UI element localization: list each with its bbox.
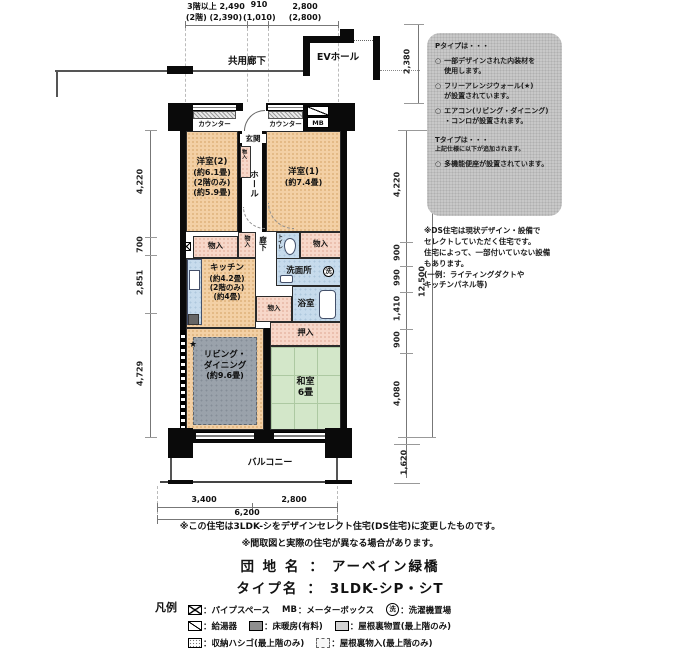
dim-line-2380 — [418, 24, 419, 103]
bathroom-label: 浴室 — [293, 299, 319, 310]
washitsu-area: 6畳 — [270, 388, 341, 399]
bottom-dim-1: 3,400 — [179, 495, 229, 505]
ev-hall-door-line — [354, 40, 373, 41]
legend-water-heater: ：給湯器 — [188, 620, 237, 632]
corridor-edge — [56, 70, 58, 97]
dim-tick — [145, 255, 157, 256]
legend-pipe-space: ：パイプスペース — [188, 604, 270, 616]
water-heater-icon — [188, 621, 202, 631]
kitchen-area: (約4.2畳) — [200, 274, 254, 283]
balcony-rail-post — [168, 480, 193, 484]
toilet-label: トイレ — [277, 234, 282, 249]
legend-title: 凡例 — [150, 601, 182, 615]
note-2: ※間取図と実際の住宅が異なる場合があります。 — [100, 539, 580, 550]
bullet-icon: ○ — [435, 107, 441, 126]
kitchen-label: キッチン (約4.2畳) (2階のみ) (約4畳) — [200, 263, 254, 302]
balcony-side-left — [170, 458, 172, 482]
balcony-corner-left — [168, 428, 193, 458]
t-type-item: ○ 多機能便座が設置されています。 — [435, 160, 555, 169]
right-dim-line — [406, 130, 407, 478]
dim-tick — [337, 503, 338, 512]
legend-row-3: ：収納ハシゴ(最上階のみ) ：屋根裏物入(最上階のみ) — [188, 637, 433, 649]
storage-right-label: 物入 — [300, 239, 341, 248]
legend-row-1: ：パイプスペース MB ：メーターボックス 洗 ：洗濯機置場 — [188, 603, 451, 616]
storage-small-label: 物入 — [256, 304, 292, 312]
t-type-subtitle: 上記仕様に以下が追加されます。 — [435, 146, 555, 154]
legend-label: ：屋根裏物入(最上階のみ) — [331, 637, 432, 649]
balcony-side-right — [336, 458, 338, 482]
legend-meter-box: MB ：メーターボックス — [282, 604, 374, 616]
p-type-title: Pタイプは・・・ — [435, 42, 555, 51]
ev-hall-wall-top — [303, 36, 345, 43]
dim-tick — [404, 24, 424, 25]
shoe-storage-label: 物入 — [241, 149, 246, 159]
storage-ladder-icon — [188, 638, 202, 648]
floor-heating-icon — [249, 621, 263, 631]
living-name2: ダイニング — [193, 361, 257, 372]
left-wall — [180, 110, 186, 330]
stove-icon — [188, 314, 199, 325]
bottom-dim-2: 2,800 — [269, 495, 319, 505]
washer-place-icon: 洗 — [323, 266, 334, 277]
bottom-dim-line-2 — [157, 519, 338, 520]
dim-tick — [400, 329, 413, 330]
legend-attic-closet: ：屋根裏物入(最上階のみ) — [316, 637, 432, 649]
legend-label: ：メーターボックス — [298, 604, 374, 616]
dim-left-1: 4,220 — [136, 152, 145, 212]
right-wall — [341, 131, 347, 430]
estate-name-row: 団 地 名 ： アーベイン緑橋 — [100, 555, 580, 575]
attic-closet-icon — [316, 638, 330, 648]
counter-window-right — [268, 104, 303, 111]
type-name-label: タイプ名 — [236, 577, 298, 597]
room1-area: (約7.4畳) — [266, 178, 341, 188]
type-name-value: 3LDK-シP・シT — [330, 577, 444, 597]
counter-window-left — [193, 104, 236, 111]
corridor-label: 廊下 — [259, 236, 267, 251]
oshiire-label: 押入 — [270, 328, 341, 338]
living-label: リビング・ ダイニング (約9.6畳) — [193, 350, 257, 381]
corridor-dotted — [380, 70, 420, 71]
estate-name-value: アーベイン緑橋 — [332, 555, 440, 575]
note-1: ※この住宅は3LDK-シをデザインセレクト住宅(DS住宅)に変更したものです。 — [100, 522, 580, 533]
dim-tick — [157, 503, 158, 512]
p-type-item: ○ エアコン(リビング・ダイニング) ・コンロが設置されます。 — [435, 107, 555, 126]
floor-plan-page: 3階以上 2,490 910 2,800 (2階) (2,390) (1,010… — [0, 0, 700, 650]
legend-floor-heating: ：床暖房(有料) — [249, 620, 323, 632]
pipe-space-icon — [188, 605, 202, 615]
legend-attic-storage: ：屋根裏物置(最上階のみ) — [335, 620, 451, 632]
bullet-icon: ○ — [435, 160, 441, 169]
legend-label: ：床暖房(有料) — [264, 620, 323, 632]
kitchen-area2: (約4畳) — [200, 292, 254, 301]
p-type-item-text: フリーアレンジウォール(★) が設置されています。 — [444, 82, 533, 101]
t-type-title: Tタイプは・・・ — [435, 136, 555, 145]
type-info-panel: Pタイプは・・・ ○ 一部デザインされた内装材を 使用します。 ○ フリーアレン… — [427, 33, 562, 216]
top-dim-2: 910 — [243, 0, 275, 10]
legend-label: ：洗濯機置場 — [400, 604, 451, 616]
p-type-item: ○ フリーアレンジウォール(★) が設置されています。 — [435, 82, 555, 101]
dim-balcony-depth: 1,620 — [400, 433, 409, 493]
dim-2380: 2,380 — [403, 32, 412, 92]
top-dim-3: 2,800 — [283, 2, 327, 12]
hall-label: ホール — [249, 170, 258, 199]
dim-tick — [404, 103, 424, 104]
living-area: (約9.6畳) — [193, 371, 257, 381]
t-type-item-text: 多機能便座が設置されています。 — [444, 160, 548, 169]
room1-name: 洋室(1) — [266, 167, 341, 178]
dim-tick — [145, 437, 157, 438]
bottom-dim-total: 6,200 — [222, 508, 272, 518]
legend-washer: 洗 ：洗濯機置場 — [386, 603, 451, 616]
attic-storage-icon — [335, 621, 349, 631]
washer-circle-icon: 洗 — [386, 603, 399, 616]
ev-hall-wall-right — [373, 36, 380, 80]
legend-label: ：給湯器 — [203, 620, 237, 632]
storage-left-label: 物入 — [193, 241, 238, 250]
dim-right-6: 4,080 — [393, 364, 402, 424]
room1-label: 洋室(1) (約7.4畳) — [266, 167, 341, 188]
dim-tick — [145, 237, 157, 238]
dim-right-5: 900 — [393, 310, 402, 370]
top-dim-line — [185, 25, 338, 26]
balcony-corner-right — [325, 428, 352, 458]
balcony-label: バルコニー — [230, 458, 310, 469]
genkan-label: 玄関 — [240, 134, 266, 143]
ev-hall-label: EVホール — [306, 52, 370, 64]
dim-tick — [400, 242, 413, 243]
free-arrange-wall — [180, 330, 186, 430]
type-name-row: タイプ名 ： 3LDK-シP・シT — [100, 577, 580, 597]
room2-label: 洋室(2) (約6.1畳) (2階のみ) (約5.9畳) — [186, 157, 238, 198]
ev-hall-stub — [340, 29, 354, 43]
washbasin-icon — [280, 275, 293, 283]
type-name-colon: ： — [307, 577, 321, 597]
water-heater-icon — [307, 106, 329, 116]
p-type-item-text: 一部デザインされた内装材を 使用します。 — [444, 57, 535, 76]
estate-name-label: 団 地 名 — [240, 555, 300, 575]
p-type-item: ○ 一部デザインされた内装材を 使用します。 — [435, 57, 555, 76]
room2-area: (約6.1畳) — [186, 168, 238, 178]
washitsu-balcony-window — [274, 432, 332, 440]
mb-text-icon: MB — [282, 605, 297, 615]
kitchen-name: キッチン — [200, 263, 254, 274]
estate-name-colon: ： — [309, 555, 323, 575]
living-name1: リビング・ — [193, 350, 257, 361]
living-balcony-window — [196, 432, 254, 440]
bathtub-icon — [319, 290, 336, 319]
ds-note: ※DS住宅は現状デザイン・設備で セレクトしていただく住宅です。 住宅によって、… — [424, 226, 604, 291]
common-corridor-label: 共用廊下 — [212, 56, 282, 68]
counter-sill-left — [193, 111, 236, 119]
storage-mid-label: 物入 — [243, 235, 249, 247]
kitchen-sink-icon — [189, 270, 200, 290]
washitsu-name: 和室 — [270, 377, 341, 388]
room2-area2: (約5.9畳) — [186, 188, 238, 198]
room2-name: 洋室(2) — [186, 157, 238, 168]
left-dim-line — [150, 130, 151, 437]
corridor-pillar — [167, 66, 193, 74]
washer-glyph: 洗 — [325, 268, 332, 275]
counter-left-label: カウンター — [191, 120, 238, 128]
dim-tick — [400, 292, 413, 293]
washitsu-label: 和室 6畳 — [270, 377, 341, 400]
top-dim-3b: (2,800) — [283, 13, 327, 23]
legend-storage-ladder: ：収納ハシゴ(最上階のみ) — [188, 637, 304, 649]
extension-line — [185, 28, 186, 102]
dim-tick — [400, 353, 413, 354]
balcony-rail-post — [325, 480, 352, 484]
dim-tick — [145, 313, 157, 314]
bullet-icon: ○ — [435, 57, 441, 76]
legend-row-2: ：給湯器 ：床暖房(有料) ：屋根裏物置(最上階のみ) — [188, 620, 451, 632]
counter-sill-right — [268, 111, 303, 119]
bullet-icon: ○ — [435, 82, 441, 101]
legend-label: ：パイプスペース — [203, 604, 270, 616]
mb-box: MB — [307, 117, 329, 128]
room2-floor-note: (2階のみ) — [186, 178, 238, 188]
p-type-item-text: エアコン(リビング・ダイニング) ・コンロが設置されます。 — [444, 107, 548, 126]
dim-left-4: 4,729 — [136, 344, 145, 404]
kitchen-floor-note: (2階のみ) — [200, 283, 254, 292]
legend-label: ：収納ハシゴ(最上階のみ) — [203, 637, 304, 649]
counter-right-label: カウンター — [262, 120, 309, 128]
dim-right-1: 4,220 — [393, 155, 402, 215]
dim-tick — [145, 130, 157, 131]
dim-left-3: 2,851 — [136, 253, 145, 313]
dim-tick — [400, 266, 413, 267]
legend-label: ：屋根裏物置(最上階のみ) — [350, 620, 451, 632]
